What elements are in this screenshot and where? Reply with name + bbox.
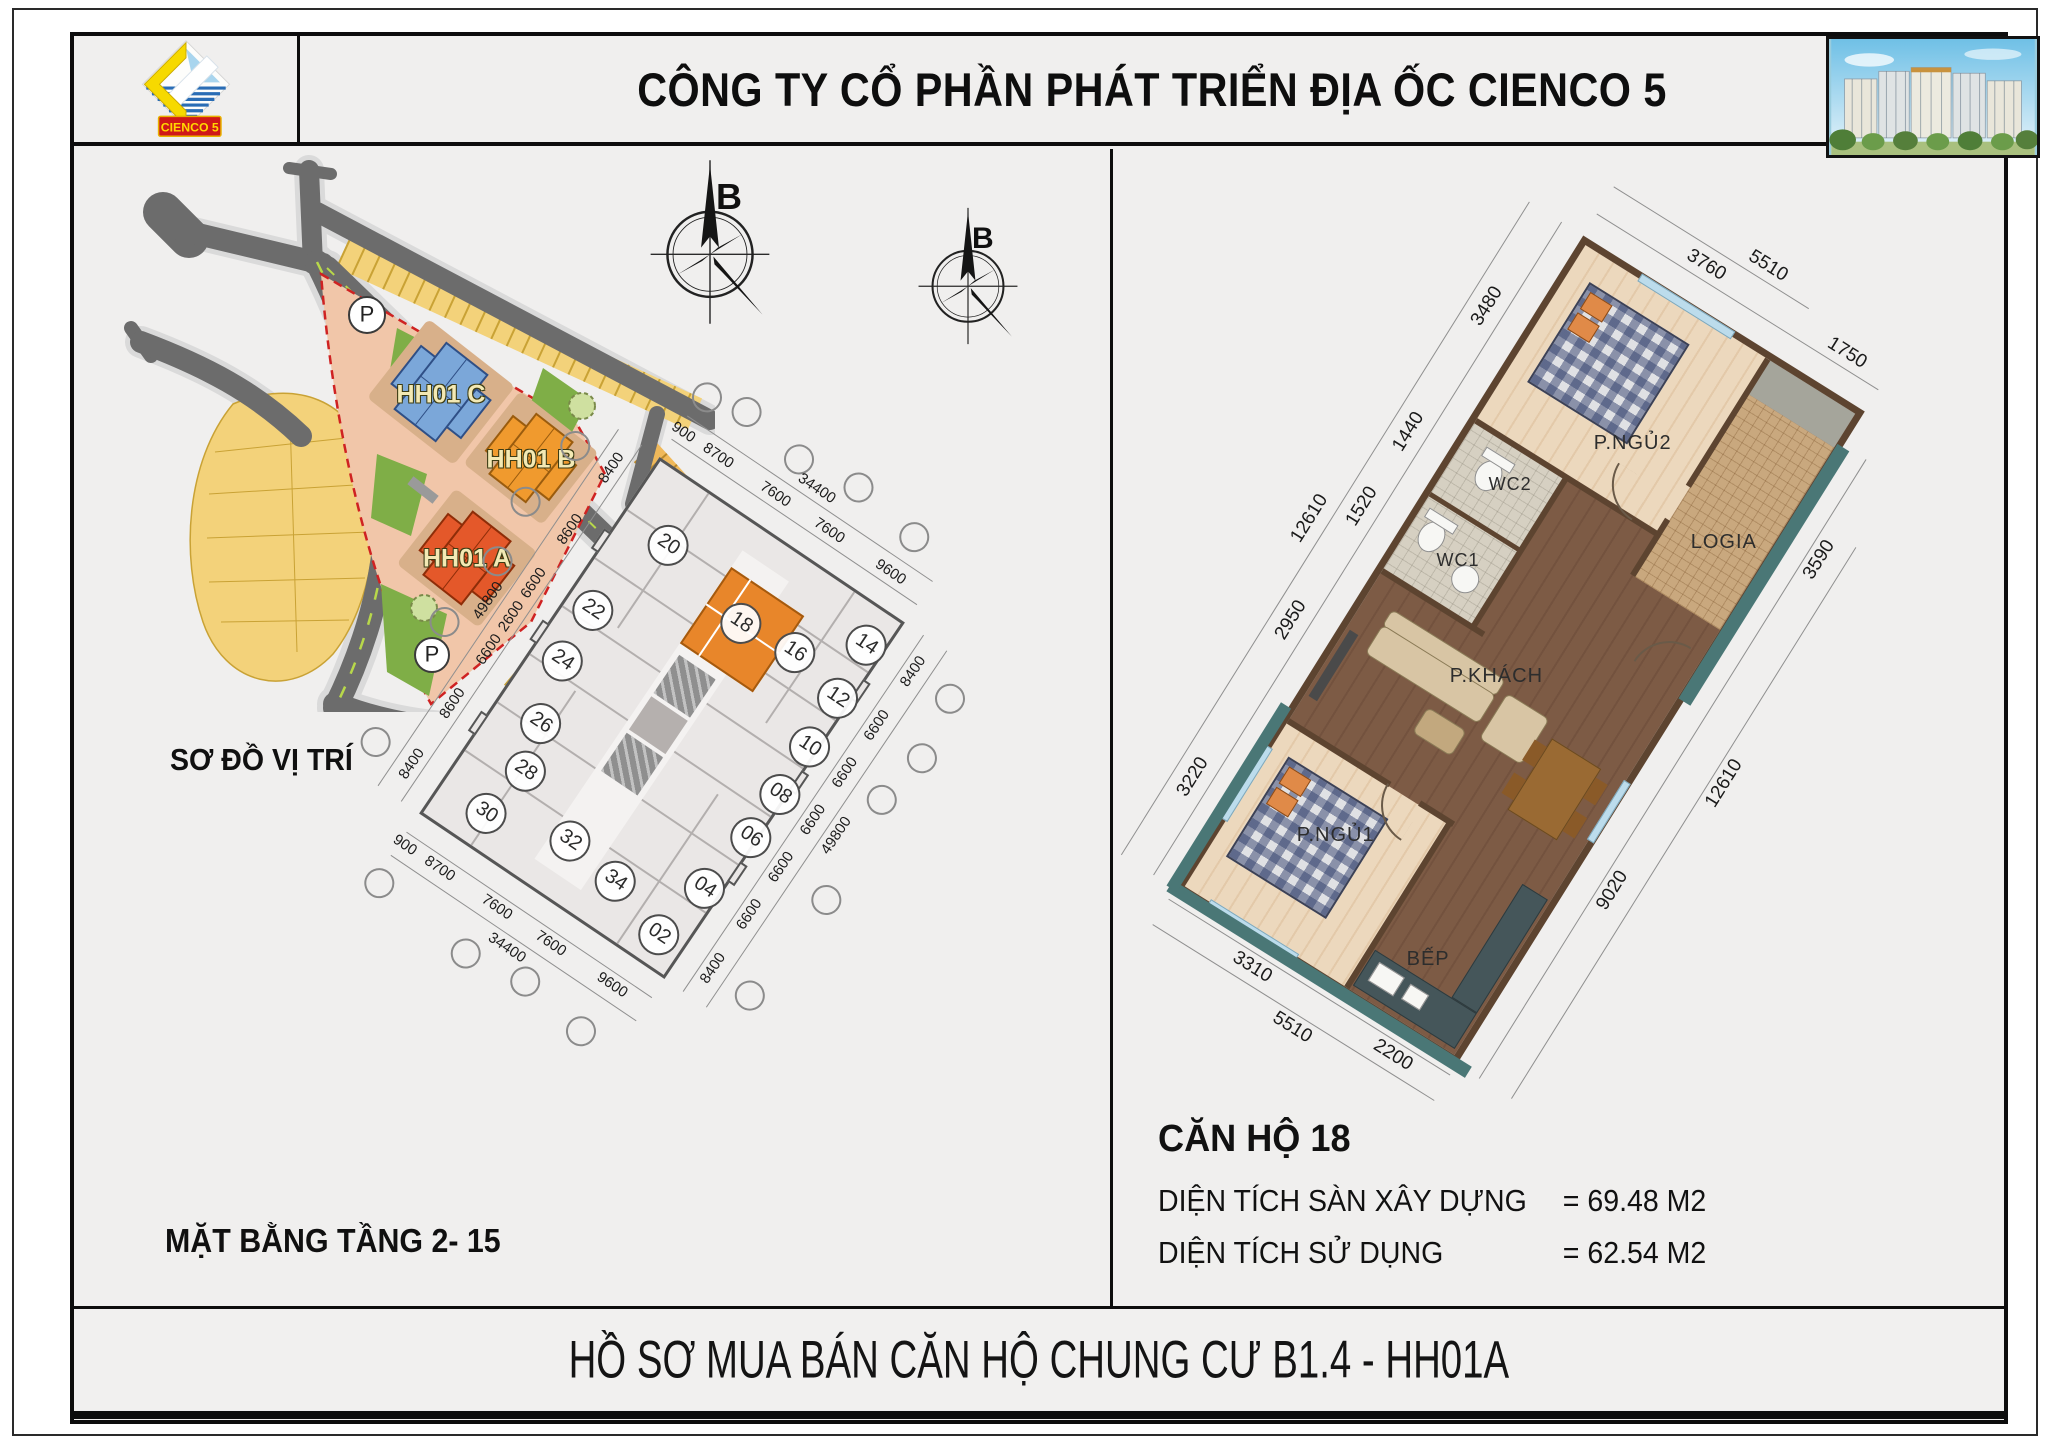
panel-divider (1110, 149, 1113, 1306)
parking-label: P (360, 301, 375, 327)
compass-north-label: B (972, 222, 994, 256)
area-value: = 62.54 M2 (1563, 1235, 1706, 1271)
footer-title: HỒ SƠ MUA BÁN CĂN HỘ CHUNG CƯ B1.4 - HH0… (569, 1330, 1510, 1391)
room-label-wc2: WC2 (1489, 474, 1532, 495)
room-label-bedroom2: P.NGỦ2 (1594, 432, 1672, 455)
area-label: DIỆN TÍCH SÀN XÂY DỰNG (1158, 1183, 1563, 1219)
room-label-kitchen: BẾP (1407, 948, 1450, 971)
company-title: CÔNG TY CỔ PHẦN PHÁT TRIỂN ĐỊA ỐC CIENCO… (637, 62, 1667, 117)
room-label-living: P.KHÁCH (1450, 665, 1543, 688)
building-photo (1826, 36, 2040, 158)
room-label-bedroom1: P.NGỦ1 (1297, 824, 1375, 847)
compass-north-label: B (716, 176, 742, 218)
area-label: DIỆN TÍCH SỬ DỤNG (1158, 1235, 1563, 1271)
logo-text: CIENCO 5 (160, 121, 218, 135)
footer: HỒ SƠ MUA BÁN CĂN HỘ CHUNG CƯ B1.4 - HH0… (74, 1306, 2004, 1419)
apartment-info: CĂN HỘ 18 DIỆN TÍCH SÀN XÂY DỰNG = 69.48… (1158, 1118, 1754, 1287)
site-map-label: SƠ ĐỒ VỊ TRÍ (170, 742, 353, 778)
header: CIENCO 5 CÔNG TY CỔ PHẦN PHÁT TRIỂN ĐỊA … (74, 36, 2004, 146)
area-row: DIỆN TÍCH SỬ DỤNG = 62.54 M2 (1158, 1235, 1706, 1271)
tree-icon (569, 393, 595, 419)
floor-plan-label: MẶT BẰNG TẦNG 2- 15 (165, 1222, 501, 1260)
room-label-logia: LOGIA (1691, 531, 1757, 554)
room-label-wc1: WC1 (1436, 550, 1479, 571)
parking-label: P (425, 641, 440, 667)
building-label-hh01c: HH01 C (397, 381, 486, 410)
apartment-title: CĂN HỘ 18 (1158, 1118, 1724, 1161)
compass-icon (916, 206, 1020, 346)
cienco5-logo-icon: CIENCO 5 (111, 37, 261, 141)
logo-cell: CIENCO 5 (74, 36, 300, 142)
area-value: = 69.48 M2 (1563, 1183, 1706, 1219)
compass-icon (648, 158, 772, 326)
area-row: DIỆN TÍCH SÀN XÂY DỰNG = 69.48 M2 (1158, 1183, 1706, 1219)
